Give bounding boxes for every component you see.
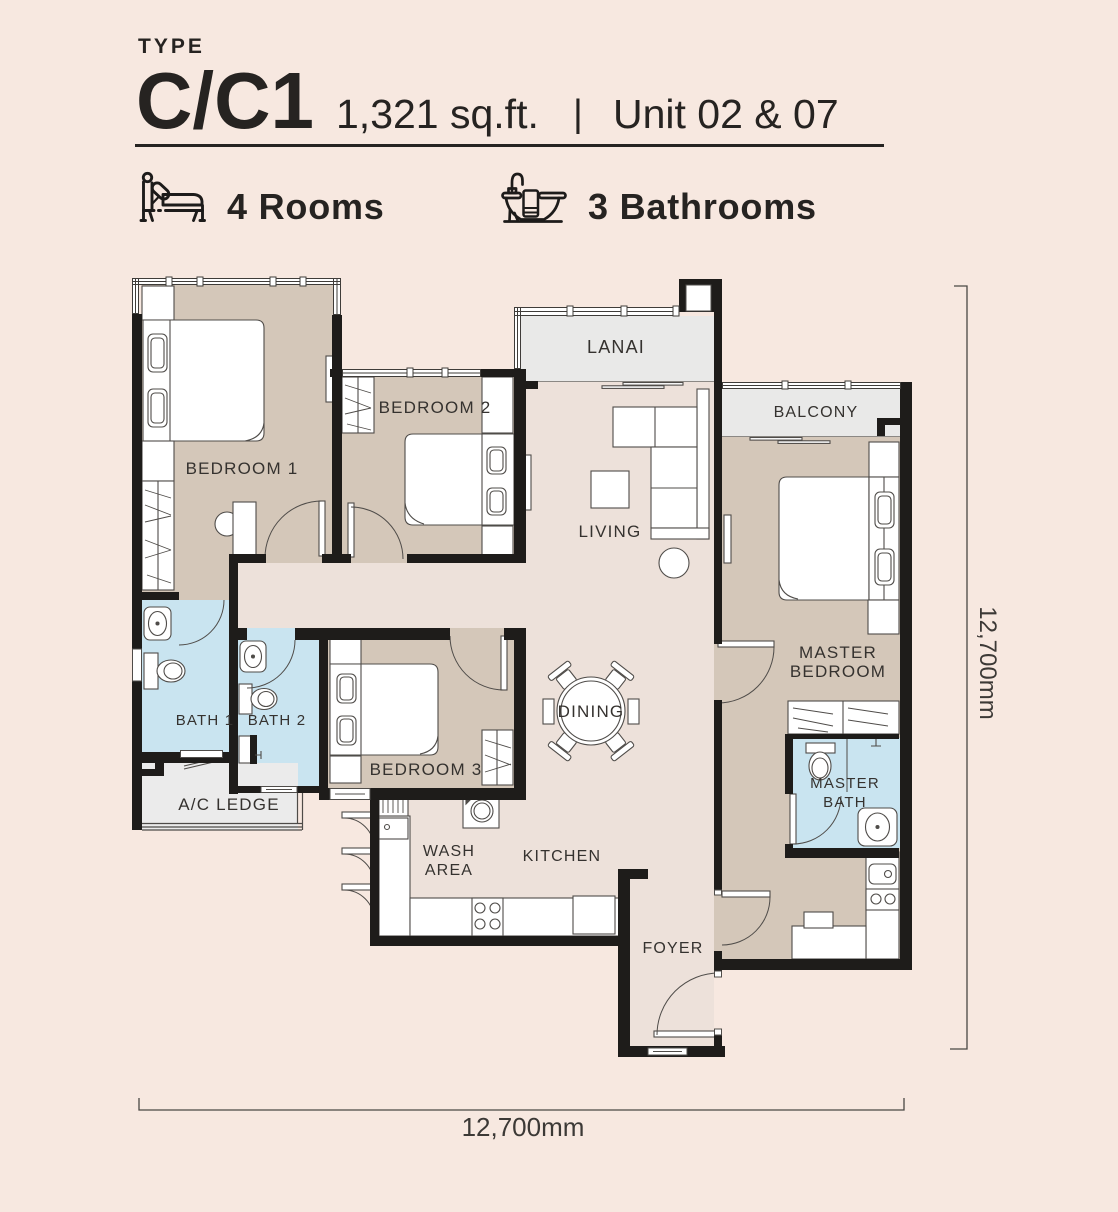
svg-text:|: | [573,93,583,135]
svg-text:DINING: DINING [558,702,625,721]
svg-text:3 Bathrooms: 3 Bathrooms [588,186,817,227]
svg-text:C/C1: C/C1 [136,56,314,145]
svg-text:12,700mm: 12,700mm [974,606,1001,719]
svg-text:BATH: BATH [823,794,867,811]
svg-text:BEDROOM 1: BEDROOM 1 [186,459,299,478]
svg-text:BALCONY: BALCONY [774,404,859,421]
svg-text:4 Rooms: 4 Rooms [227,186,385,227]
svg-text:BEDROOM: BEDROOM [790,662,886,681]
svg-text:AREA: AREA [425,862,473,879]
svg-text:12,700mm: 12,700mm [462,1112,585,1142]
svg-text:WASH: WASH [423,843,475,860]
svg-text:KITCHEN: KITCHEN [523,848,602,865]
svg-text:BEDROOM 2: BEDROOM 2 [379,398,492,417]
svg-text:BATH 2: BATH 2 [248,712,307,729]
svg-text:TYPE: TYPE [138,35,205,58]
svg-text:BATH 1: BATH 1 [176,712,235,729]
svg-text:1,321 sq.ft.: 1,321 sq.ft. [336,91,539,137]
svg-text:FOYER: FOYER [642,940,703,957]
svg-text:MASTER: MASTER [810,775,880,792]
svg-text:MASTER: MASTER [799,643,877,662]
svg-text:A/C LEDGE: A/C LEDGE [178,795,280,814]
svg-text:LANAI: LANAI [587,337,645,357]
svg-text:LIVING: LIVING [579,522,642,541]
svg-text:BEDROOM 3: BEDROOM 3 [370,760,483,779]
svg-text:Unit 02 & 07: Unit 02 & 07 [613,91,839,137]
